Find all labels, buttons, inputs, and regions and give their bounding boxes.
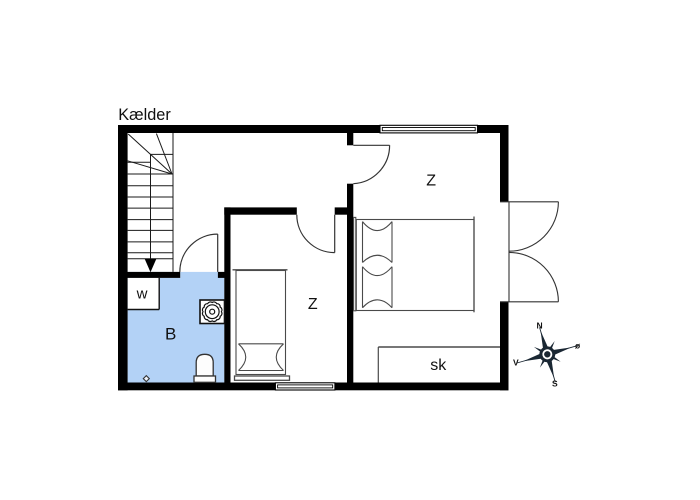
svg-text:Z: Z [426,172,436,189]
svg-text:ø: ø [575,341,581,351]
svg-text:B: B [165,325,176,344]
svg-text:S: S [552,379,558,389]
svg-text:Z: Z [308,296,318,313]
svg-text:sk: sk [430,357,447,374]
svg-text:Kælder: Kælder [118,106,171,124]
svg-text:V: V [513,358,519,368]
svg-text:N: N [537,321,543,331]
svg-text:w: w [136,285,148,302]
